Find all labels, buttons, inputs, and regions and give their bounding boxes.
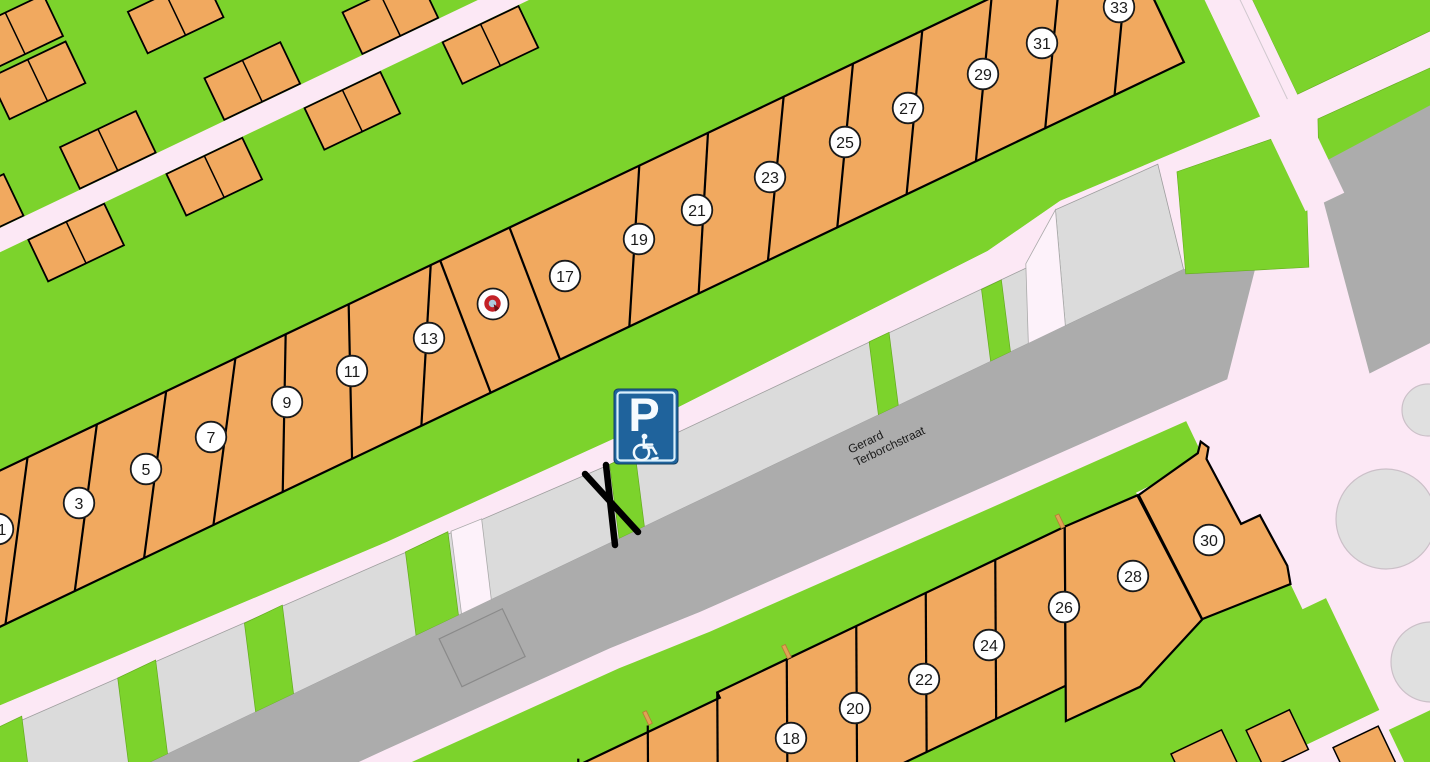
svg-text:13: 13	[420, 331, 438, 348]
svg-text:23: 23	[761, 170, 779, 187]
svg-text:19: 19	[630, 232, 648, 249]
svg-text:26: 26	[1055, 600, 1073, 617]
svg-text:1: 1	[0, 522, 7, 539]
svg-text:18: 18	[782, 731, 800, 748]
svg-text:9: 9	[283, 395, 292, 412]
svg-text:P: P	[628, 388, 659, 441]
svg-text:11: 11	[344, 364, 361, 381]
svg-text:5: 5	[142, 462, 151, 479]
svg-text:25: 25	[836, 135, 854, 152]
svg-text:24: 24	[980, 638, 998, 655]
svg-text:17: 17	[556, 269, 574, 286]
svg-text:22: 22	[915, 672, 933, 689]
svg-text:31: 31	[1033, 36, 1051, 53]
svg-text:21: 21	[688, 203, 706, 220]
svg-text:28: 28	[1124, 569, 1142, 586]
svg-text:20: 20	[846, 701, 864, 718]
svg-text:7: 7	[207, 430, 216, 447]
svg-text:29: 29	[974, 67, 992, 84]
svg-text:3: 3	[75, 496, 84, 513]
svg-text:30: 30	[1200, 533, 1218, 550]
svg-text:33: 33	[1110, 0, 1128, 17]
svg-text:27: 27	[899, 101, 917, 118]
